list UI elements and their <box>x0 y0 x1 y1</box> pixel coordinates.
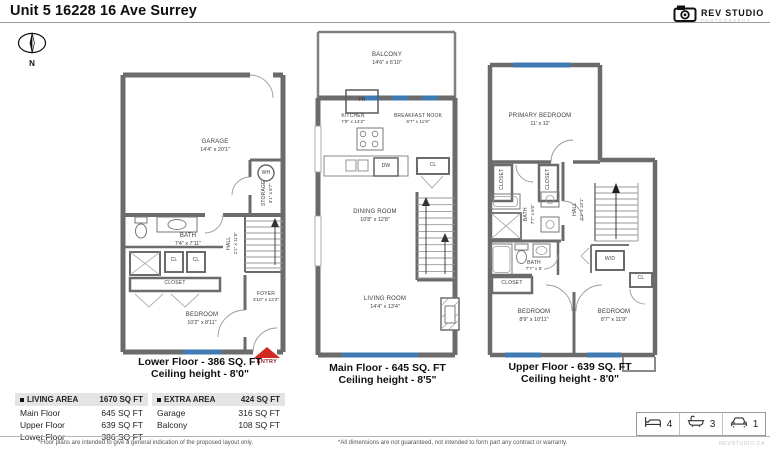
site-credit: REVSTUDIO.CA <box>719 441 765 447</box>
floor-plan-main: BALCONY14'6" x 6'10" FR KITCHEN7'9" x 14… <box>312 28 462 363</box>
page-title: Unit 5 16228 16 Ave Surrey <box>10 3 197 19</box>
baths-stat: 3 <box>679 413 722 435</box>
extra-area-header: EXTRA AREA 424 SQ FT <box>152 393 285 406</box>
rev-studio-logo: REV STUDIO PHOTOGRAPHY <box>673 4 764 28</box>
caption-lower-floor: Lower Floor - 386 SQ. FT Ceiling height … <box>100 356 300 381</box>
table-row: Main Floor645 SQ FT <box>15 406 148 418</box>
compass-label: N <box>14 60 50 68</box>
footnote-left: *Floor plans are intended to give a gene… <box>38 440 253 446</box>
table-row: Garage316 SQ FT <box>152 406 285 418</box>
caption-main-floor: Main Floor - 645 SQ. FT Ceiling height -… <box>300 362 475 387</box>
car-icon <box>730 415 748 433</box>
table-row: Balcony108 SQ FT <box>152 418 285 430</box>
bullet-icon <box>20 398 24 402</box>
stats-box: 4 3 1 <box>636 412 766 436</box>
footnote-right: *All dimensions are not guaranteed, not … <box>338 440 567 446</box>
beds-stat: 4 <box>637 413 679 435</box>
compass-icon: N <box>14 30 50 68</box>
footer-divider <box>0 436 770 437</box>
header-divider <box>0 22 770 23</box>
parking-stat: 1 <box>722 413 765 435</box>
living-area-table: LIVING AREA 1670 SQ FT Main Floor645 SQ … <box>15 393 148 442</box>
floor-plan-lower: GARAGE14'4" x 20'1" WH STORAGE3'1" x 8'7… <box>105 65 295 365</box>
floor-plan-upper: PRIMARY BEDROOM11' x 12' CLOSET CLOSET B… <box>483 55 668 385</box>
living-area-header: LIVING AREA 1670 SQ FT <box>15 393 148 406</box>
bullet-icon <box>157 398 161 402</box>
logo-subtitle: PHOTOGRAPHY <box>701 19 764 24</box>
extra-area-table: EXTRA AREA 424 SQ FT Garage316 SQ FT Bal… <box>152 393 285 430</box>
camera-icon <box>673 4 697 28</box>
floorplan-sheet: Unit 5 16228 16 Ave Surrey REV STUDIO PH… <box>0 0 770 450</box>
bath-icon <box>687 415 705 433</box>
bed-icon <box>644 415 662 433</box>
table-row: Upper Floor639 SQ FT <box>15 418 148 430</box>
caption-upper-floor: Upper Floor - 639 SQ. FT Ceiling height … <box>470 361 670 386</box>
